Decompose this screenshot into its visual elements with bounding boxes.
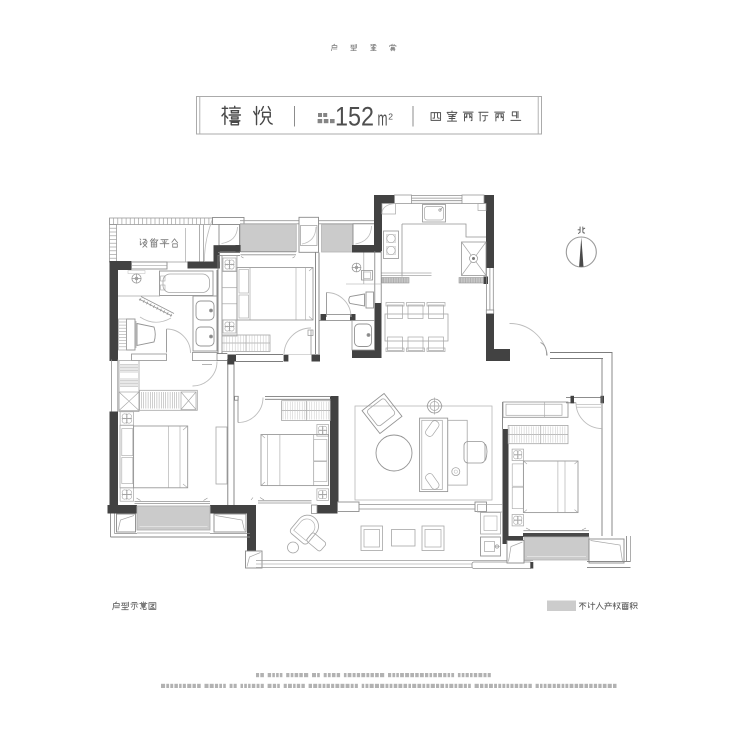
svg-text:152: 152 (335, 102, 374, 132)
svg-text:m: m (378, 108, 388, 130)
svg-text:2: 2 (388, 112, 393, 122)
